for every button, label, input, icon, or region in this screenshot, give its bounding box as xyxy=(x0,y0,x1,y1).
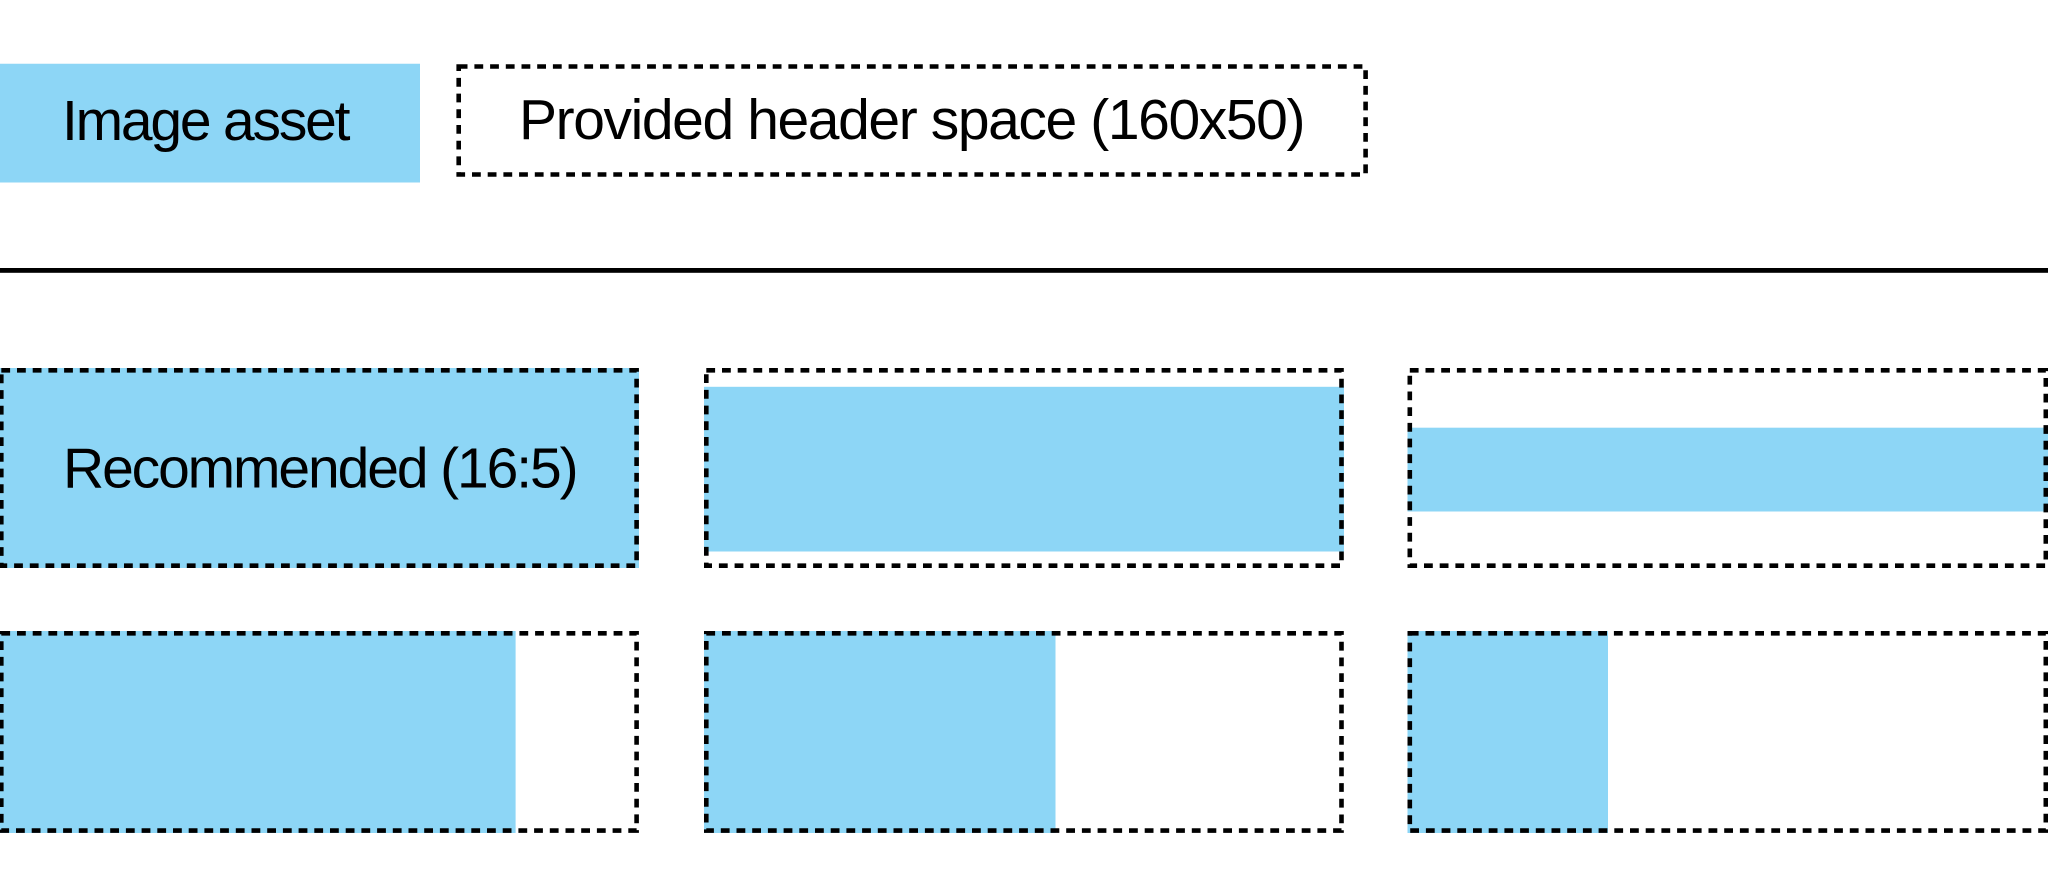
svg-text:Provided header space (160x50): Provided header space (160x50) xyxy=(519,88,1304,152)
svg-text:Image asset: Image asset xyxy=(62,89,351,153)
svg-text:Recommended (16:5): Recommended (16:5) xyxy=(63,437,576,501)
